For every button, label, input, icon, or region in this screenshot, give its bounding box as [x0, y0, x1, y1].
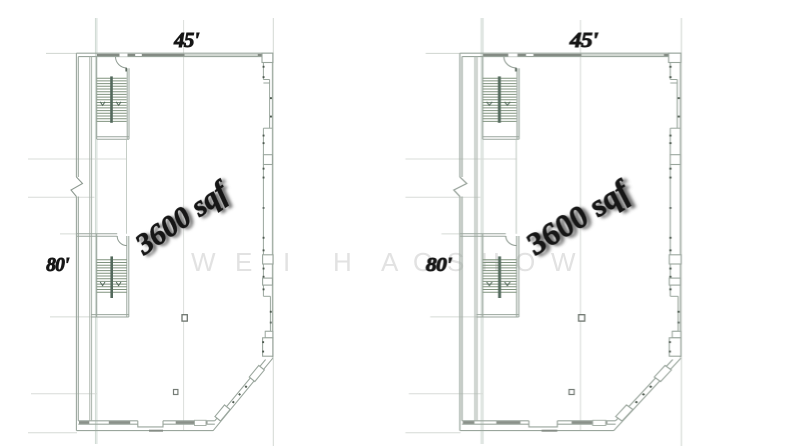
svg-text:W: W	[191, 247, 216, 277]
svg-text:H: H	[333, 247, 352, 277]
svg-text:A: A	[381, 247, 399, 277]
svg-text:80': 80'	[46, 255, 70, 276]
svg-text:45': 45'	[569, 28, 598, 51]
svg-text:80': 80'	[426, 255, 453, 276]
svg-text:45': 45'	[173, 28, 200, 52]
svg-text:I: I	[283, 247, 290, 277]
svg-text:E: E	[235, 247, 252, 277]
